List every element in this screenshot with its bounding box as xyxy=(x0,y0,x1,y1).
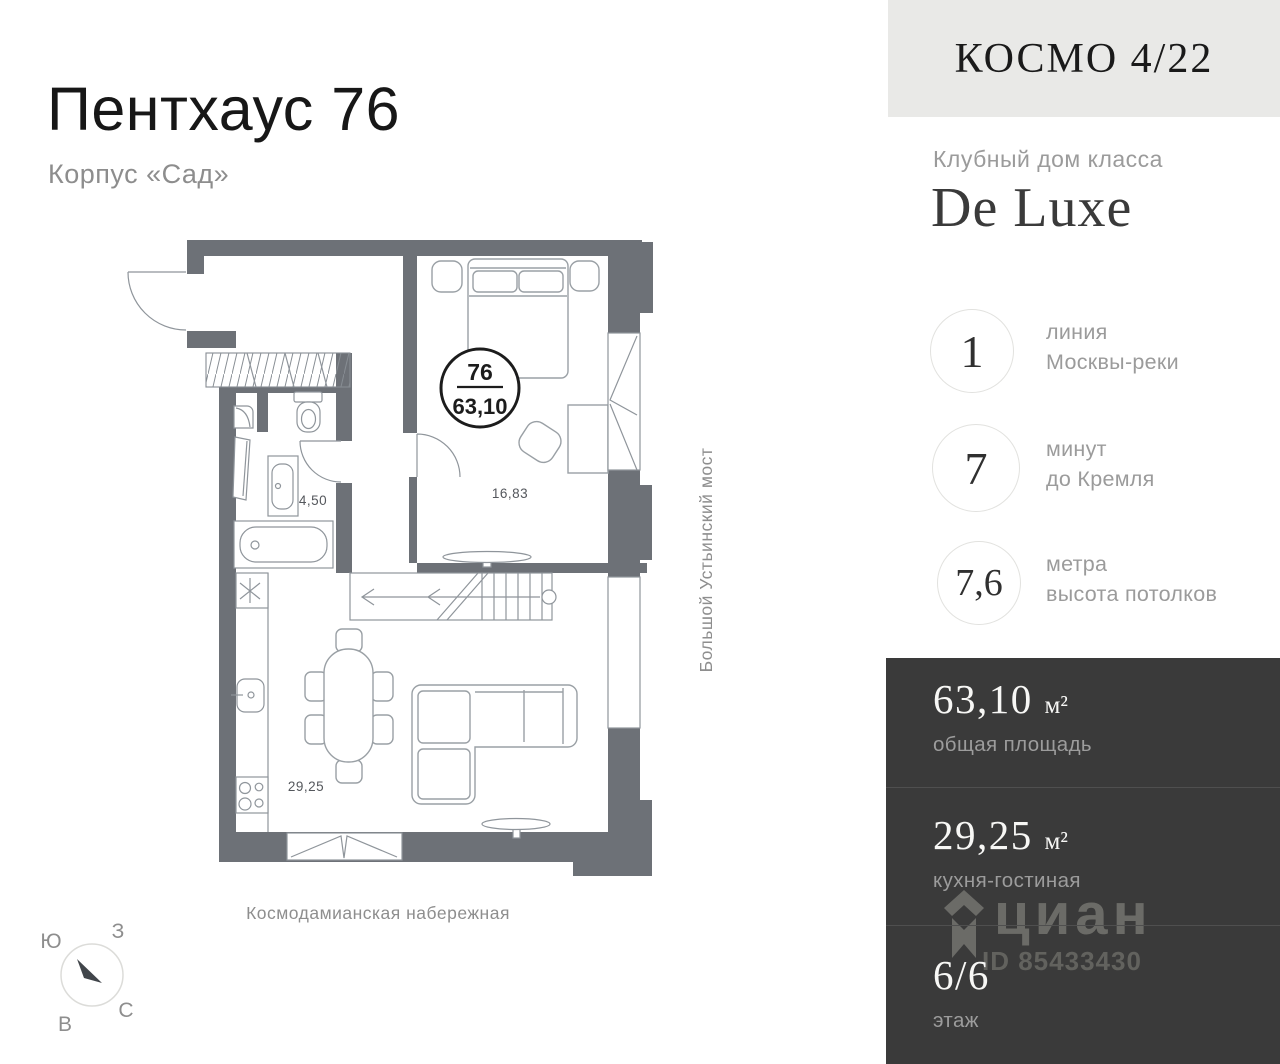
feature-circle-ceilings: 7,6 xyxy=(937,541,1021,625)
toilet xyxy=(294,392,322,432)
info-panel: КОСМО 4/22 Клубный дом класса De Luxe 1 … xyxy=(886,0,1280,1064)
feature-value: 7,6 xyxy=(955,561,1003,605)
street-label-right: Большой Устьинский мост xyxy=(696,448,716,673)
bathroom-door xyxy=(300,441,341,482)
stat-unit: м² xyxy=(1045,692,1068,719)
stove xyxy=(236,777,268,813)
stairs xyxy=(350,573,556,620)
window-bedroom xyxy=(608,333,640,470)
feature-label-kremlin: минут до Кремля xyxy=(1046,434,1155,494)
compass-south: Ю xyxy=(40,930,61,953)
feature-line: минут xyxy=(1046,434,1155,464)
compass-west: З xyxy=(112,920,125,943)
bedroom-door xyxy=(417,434,460,477)
stat-floor: 6/6 этаж xyxy=(886,925,1280,1064)
feature-label-river-line: линия Москвы-реки xyxy=(1046,317,1179,377)
feature-line: линия xyxy=(1046,317,1179,347)
feature-circle-river-line: 1 xyxy=(930,309,1014,393)
feature-line: метра xyxy=(1046,549,1217,579)
street-label-bottom: Космодамианская набережная xyxy=(246,903,510,923)
floor-plan: 76 63,10 4,50 16,83 29,25 Космодамианска… xyxy=(0,0,885,1064)
stat-value: 63,10 xyxy=(933,676,1033,722)
area-label-bathroom: 4,50 xyxy=(299,493,327,508)
dining-table xyxy=(324,649,373,762)
corner-sofa xyxy=(412,685,577,804)
armchair xyxy=(515,417,565,466)
area-label-kitchen-living: 29,25 xyxy=(288,779,324,794)
stat-total-area: 63,10 м² общая площадь xyxy=(886,658,1280,787)
feature-line: до Кремля xyxy=(1046,464,1155,494)
wardrobe-hatch xyxy=(206,353,350,387)
corner-washbasin xyxy=(234,406,253,428)
mirror-panel xyxy=(233,437,250,500)
stat-label: кухня-гостиная xyxy=(933,871,1280,892)
badge-unit-area: 63,10 xyxy=(452,394,507,419)
compass: Ю З С В xyxy=(40,920,133,1036)
bathtub xyxy=(234,521,333,568)
stat-label: этаж xyxy=(933,1011,1280,1032)
dresser xyxy=(568,405,608,473)
feature-circle-kremlin: 7 xyxy=(932,424,1020,512)
unit-badge: 76 63,10 xyxy=(441,349,519,427)
building-class-label: Клубный дом класса xyxy=(933,146,1163,173)
brand-logo: КОСМО 4/22 xyxy=(955,35,1214,83)
feature-value: 1 xyxy=(961,325,984,378)
bathroom-sink xyxy=(268,456,298,516)
stat-value: 6/6 xyxy=(933,952,990,998)
feature-line: высота потолков xyxy=(1046,579,1217,609)
brand-header: КОСМО 4/22 xyxy=(888,0,1280,117)
window-living xyxy=(608,577,640,728)
stat-kitchen-living-area: 29,25 м² кухня-гостиная xyxy=(886,787,1280,925)
area-label-bedroom: 16,83 xyxy=(492,486,528,501)
window-balcony xyxy=(287,833,402,860)
stat-label: общая площадь xyxy=(933,735,1280,756)
nightstand-left xyxy=(432,261,462,292)
compass-north: С xyxy=(118,999,133,1022)
nightstand-right xyxy=(570,261,599,291)
feature-line: Москвы-реки xyxy=(1046,347,1179,377)
stats-panel: 63,10 м² общая площадь 29,25 м² кухня-го… xyxy=(886,658,1280,1064)
building-class-value: De Luxe xyxy=(931,176,1132,240)
entry-door xyxy=(128,272,186,330)
stat-value: 29,25 xyxy=(933,812,1033,858)
compass-east: В xyxy=(58,1013,72,1036)
feature-value: 7 xyxy=(965,442,988,495)
badge-unit-number: 76 xyxy=(467,359,493,385)
listing-page: Пентхаус 76 Корпус «Сад» xyxy=(0,0,1280,1064)
stat-unit: м² xyxy=(1045,828,1068,855)
feature-label-ceilings: метра высота потолков xyxy=(1046,549,1217,609)
